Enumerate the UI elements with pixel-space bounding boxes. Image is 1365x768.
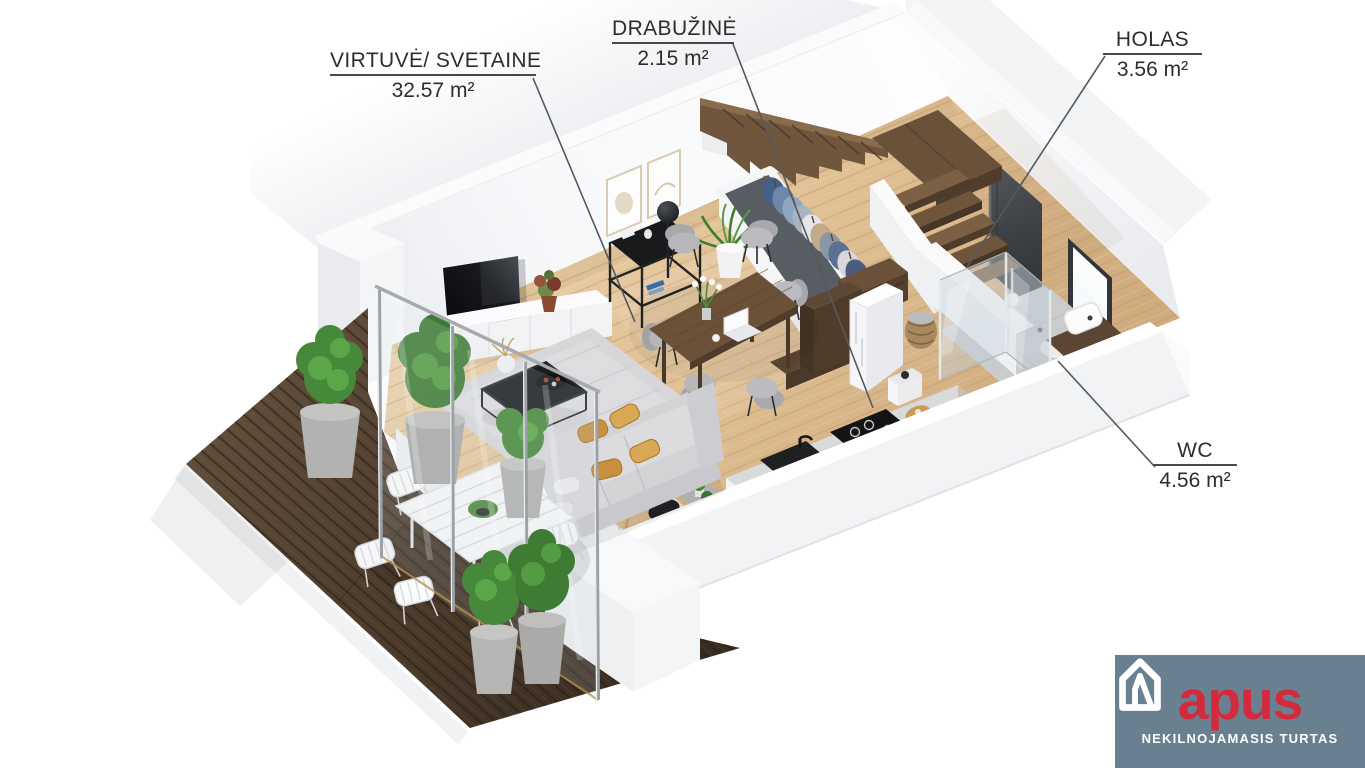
logo-tagline: NEKILNOJAMASIS TURTAS — [1142, 731, 1339, 746]
room-area: 3.56 m² — [1103, 57, 1202, 82]
table-lamp — [657, 201, 679, 223]
wicker-basket — [905, 312, 937, 349]
room-name: VIRTUVĖ/ SVETAINE — [330, 48, 536, 73]
label-wardrobe: DRABUŽINĖ 2.15 m² — [612, 16, 734, 71]
room-name: HOLAS — [1103, 27, 1202, 52]
room-area: 2.15 m² — [612, 46, 734, 71]
room-name: DRABUŽINĖ — [612, 16, 734, 41]
label-underline — [1103, 53, 1202, 55]
logo-brand-text: apus — [1178, 675, 1302, 725]
floor-plan-page: VIRTUVĖ/ SVETAINE 32.57 m² DRABUŽINĖ 2.1… — [0, 0, 1365, 768]
room-name: WC — [1153, 438, 1237, 463]
floor-plan-3d-render — [0, 0, 1365, 768]
room-area: 32.57 m² — [330, 78, 536, 103]
label-underline — [330, 74, 536, 76]
label-kitchen-living: VIRTUVĖ/ SVETAINE 32.57 m² — [330, 48, 536, 103]
label-hall: HOLAS 3.56 m² — [1103, 27, 1202, 82]
label-underline — [1153, 464, 1237, 466]
agency-logo: apus NEKILNOJAMASIS TURTAS — [1115, 655, 1365, 768]
label-underline — [612, 42, 734, 44]
room-area: 4.56 m² — [1153, 468, 1237, 493]
label-wc: WC 4.56 m² — [1153, 438, 1237, 493]
house-icon — [1115, 655, 1165, 715]
